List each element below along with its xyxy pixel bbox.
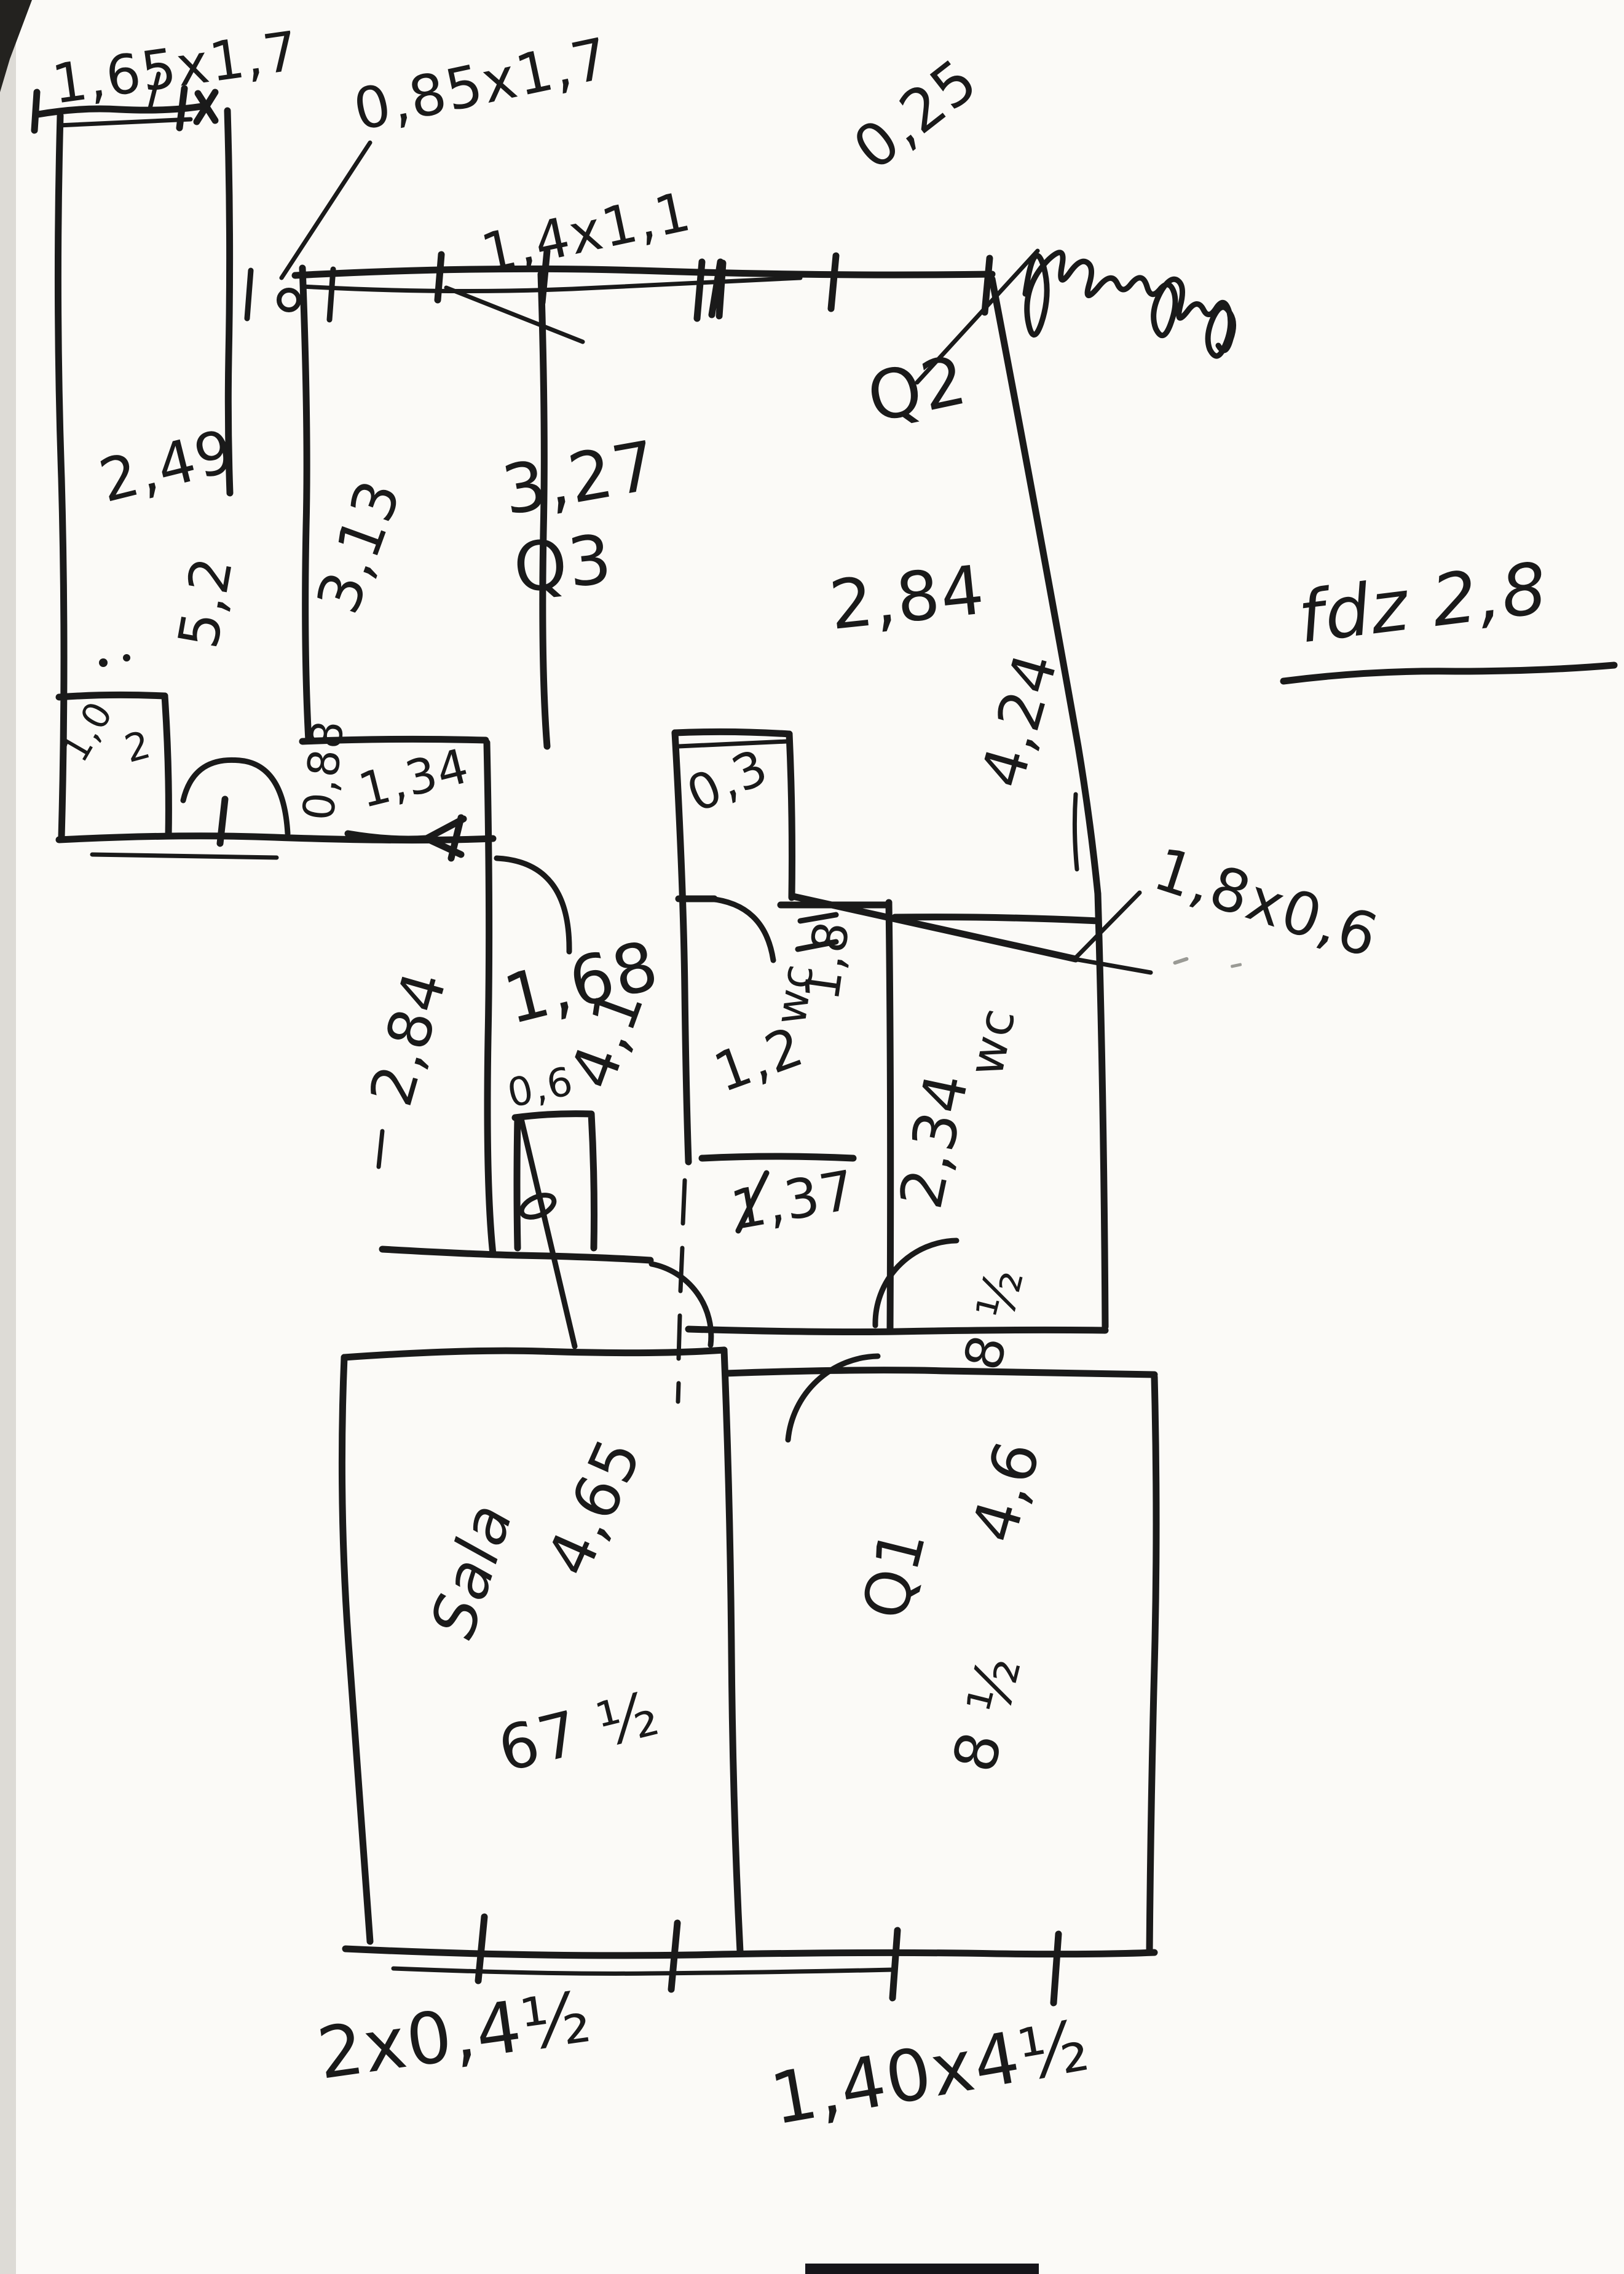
ink-dot xyxy=(99,658,108,667)
room-q1-walls xyxy=(725,1370,1156,2003)
room-q3-height: 3,13 xyxy=(303,470,414,622)
dashed-wall xyxy=(678,1180,685,1402)
shaft-mark xyxy=(518,1191,557,1222)
scan-bottom-mark xyxy=(805,2264,1039,2274)
room-left-height: 5,2 xyxy=(166,551,245,653)
ink-dot xyxy=(123,654,130,661)
wc-small-width: 1,2 xyxy=(706,1014,811,1105)
window-tick xyxy=(438,255,441,300)
passage-width: 0,88 xyxy=(293,717,354,823)
top-wall xyxy=(295,251,992,342)
dim-tick xyxy=(34,92,37,130)
scan-edge-shadow xyxy=(0,0,16,2274)
labels: 1,65x1,7 0,85x1,7 1,4x1,1 0,25 fdz 2,8 1… xyxy=(49,19,1553,2141)
room-q3-width: 3,27 xyxy=(497,426,663,531)
room-sala-name: Sala xyxy=(416,1494,527,1646)
door-arc xyxy=(183,760,288,834)
door-jamb xyxy=(1074,794,1077,869)
wc-small-name: wc xyxy=(765,960,824,1028)
dim-label-window-left: 1,65x1,7 xyxy=(49,19,303,116)
corridor-gap: 0,3 xyxy=(679,738,777,823)
stray-stroke xyxy=(446,288,583,342)
room-sala-width: 4,65 xyxy=(532,1427,656,1586)
room-q1-area: 8 ½ xyxy=(940,1648,1035,1779)
alcove-depth: 2 xyxy=(120,722,156,772)
dim-label-bottom-right: 1,40x4½ xyxy=(765,2004,1095,2141)
leader-line xyxy=(282,143,370,278)
wc-small-below: 1,37 xyxy=(726,1158,861,1242)
note-underline xyxy=(1283,665,1614,681)
room-q2-width: 2,84 xyxy=(826,550,989,645)
dash xyxy=(379,1131,382,1167)
window-tick xyxy=(831,256,836,309)
door-arc xyxy=(709,899,773,960)
dim-label-window-left2: 0,85x1,7 xyxy=(348,25,615,143)
door-width: 1,34 xyxy=(353,738,475,819)
corridor-side: 2,84 xyxy=(357,963,460,1113)
alcove-wall xyxy=(165,696,168,836)
room-q1-name: Q1 xyxy=(848,1522,940,1626)
room-q1-height: 4,6 xyxy=(958,1432,1055,1550)
room-q2-height: 4,24 xyxy=(968,645,1071,795)
dim-label-wall-thickness: 0,25 xyxy=(841,45,991,184)
ink-speck xyxy=(1173,957,1189,965)
leader-line xyxy=(1074,893,1151,973)
room-q2-name: Q2 xyxy=(861,341,974,438)
dim-label-balcony-door: 1,8x0,6 xyxy=(1146,834,1387,971)
floor-plan-sketch: 1,65x1,7 0,85x1,7 1,4x1,1 0,25 fdz 2,8 1… xyxy=(0,0,1624,2274)
dim-tick xyxy=(893,1930,1058,2003)
door-arc xyxy=(497,858,569,952)
wc-large-name: wc xyxy=(958,1003,1027,1081)
alcove-wall xyxy=(59,695,165,697)
shaft-diagonal xyxy=(521,1119,575,1346)
room-left-width: 2,49 xyxy=(93,416,242,516)
ink-speck xyxy=(1231,963,1242,968)
room-sala-bottom: 67 ½ xyxy=(491,1677,666,1786)
note-label-right: fdz 2,8 xyxy=(1294,547,1553,660)
scanned-paper-sheet: 1,65x1,7 0,85x1,7 1,4x1,1 0,25 fdz 2,8 1… xyxy=(0,0,1624,2274)
illegible-scribble-note xyxy=(1025,253,1234,356)
wc-large-area: 8 ½ xyxy=(952,1261,1036,1376)
wc-large-height: 2,34 xyxy=(886,1067,982,1214)
shaft-width: 0,6 xyxy=(503,1059,578,1117)
room-q3-name: Q3 xyxy=(510,519,616,608)
dim-label-bottom-left: 2x0,4½ xyxy=(313,1976,597,2096)
